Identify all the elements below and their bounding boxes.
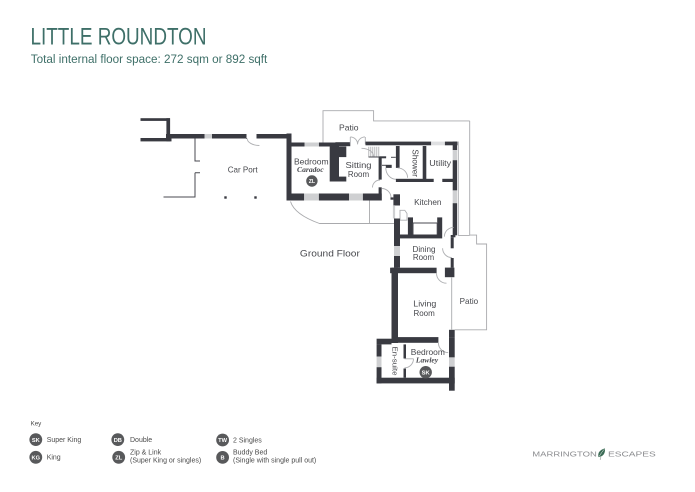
svg-text:(Super King or singles): (Super King or singles)	[130, 457, 201, 464]
svg-text:Patio: Patio	[339, 124, 359, 133]
svg-text:LITTLE ROUNDTON: LITTLE ROUNDTON	[31, 24, 207, 51]
svg-text:ZL: ZL	[115, 456, 122, 462]
svg-text:Key: Key	[31, 421, 43, 428]
svg-text:DB: DB	[114, 438, 122, 444]
svg-text:Sitting: Sitting	[346, 161, 372, 170]
svg-text:Zip & Link: Zip & Link	[130, 449, 162, 456]
svg-text:ESCAPES: ESCAPES	[608, 450, 656, 459]
svg-text:Room: Room	[348, 170, 369, 179]
svg-text:MARRINGTON: MARRINGTON	[532, 450, 597, 459]
svg-text:Super King: Super King	[47, 437, 82, 444]
svg-text:TW: TW	[218, 438, 227, 444]
svg-text:KG: KG	[32, 456, 41, 462]
svg-text:ZL: ZL	[309, 179, 316, 185]
svg-text:Patio: Patio	[460, 297, 479, 306]
svg-text:Total internal floor space: 27: Total internal floor space: 272 sqm or 8…	[31, 52, 268, 66]
svg-text:Living: Living	[413, 300, 436, 309]
svg-text:En-suite: En-suite	[390, 347, 399, 376]
svg-text:SK: SK	[32, 438, 41, 444]
svg-text:Caradoc: Caradoc	[297, 165, 324, 174]
svg-text:Shower: Shower	[411, 149, 420, 177]
svg-text:SK: SK	[422, 370, 431, 376]
svg-text:Utility: Utility	[429, 159, 452, 168]
svg-text:King: King	[47, 455, 61, 462]
svg-text:Lawley: Lawley	[415, 355, 439, 364]
svg-text:Buddy Bed: Buddy Bed	[233, 449, 267, 456]
svg-text:2 Singles: 2 Singles	[233, 437, 262, 444]
svg-text:Kitchen: Kitchen	[414, 198, 442, 207]
svg-text:Ground Floor: Ground Floor	[300, 248, 361, 259]
svg-text:Room: Room	[413, 253, 434, 262]
svg-text:Double: Double	[130, 437, 152, 444]
svg-text:(Single with single pull out): (Single with single pull out)	[233, 457, 316, 464]
svg-text:B: B	[221, 456, 225, 462]
svg-text:Room: Room	[413, 309, 434, 318]
svg-text:Car Port: Car Port	[228, 165, 259, 174]
